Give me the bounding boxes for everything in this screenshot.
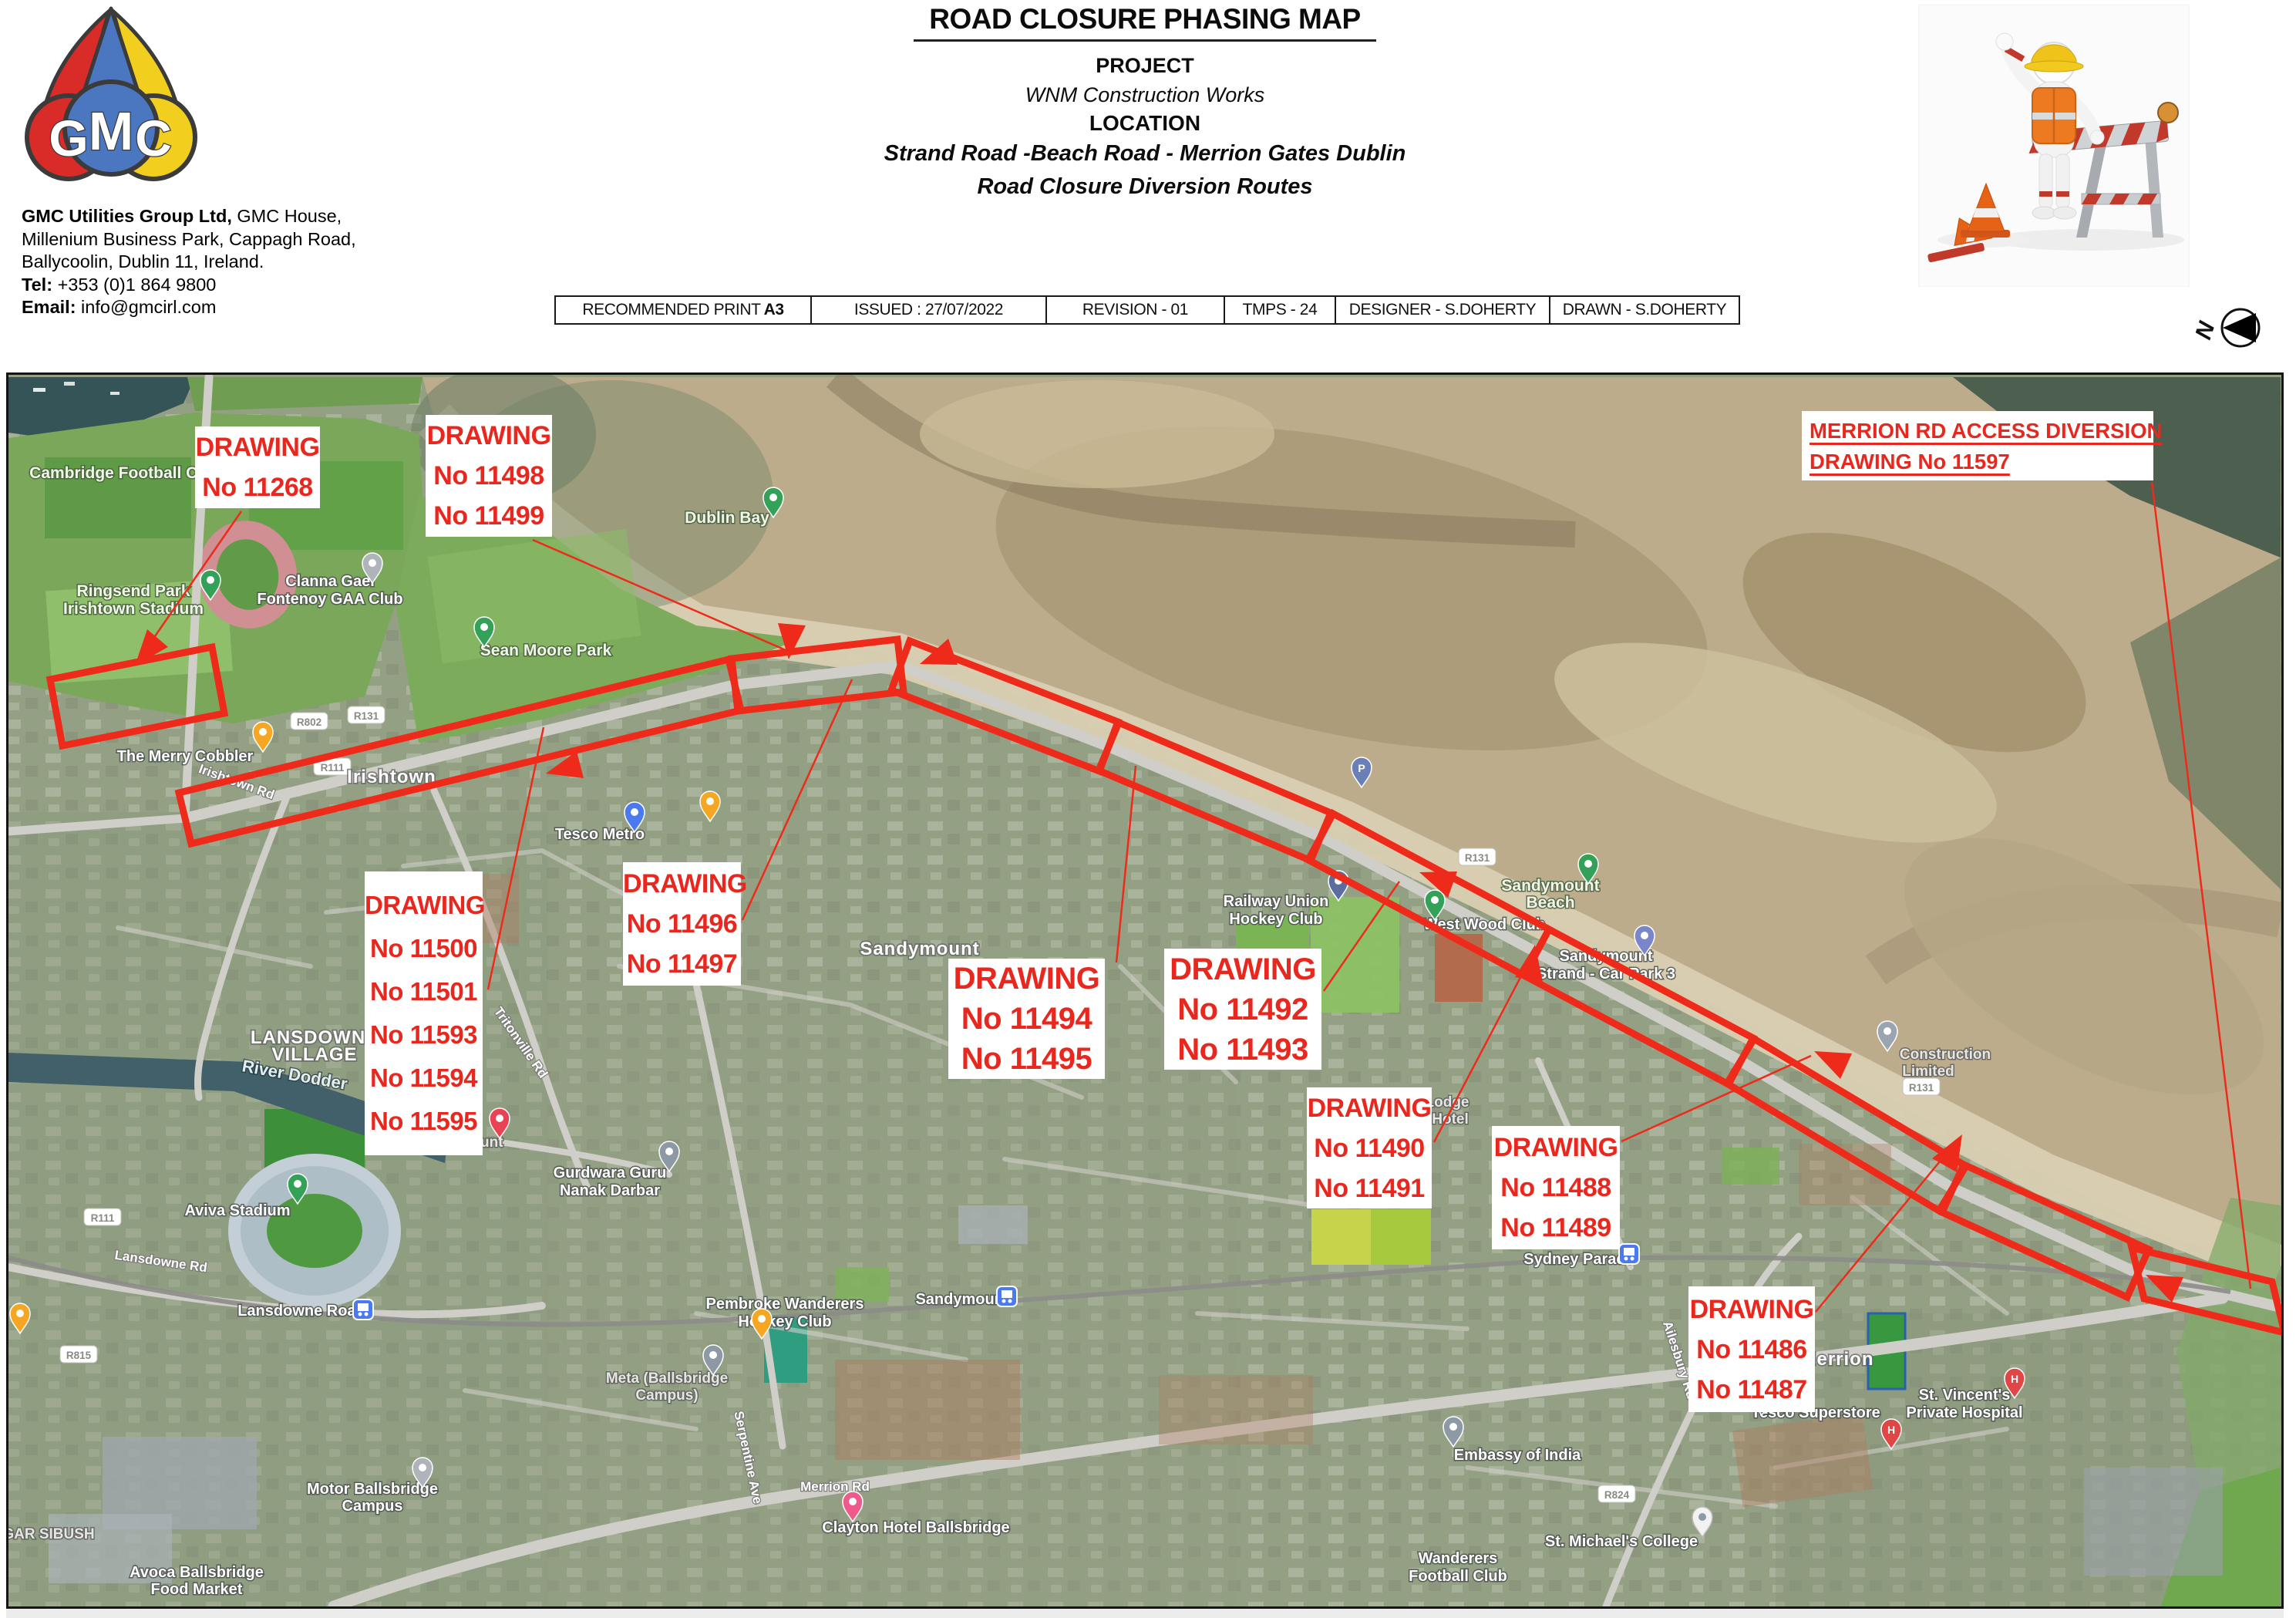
label-clayton: Clayton Hotel Ballsbridge xyxy=(822,1519,1009,1536)
station-lansdowne-road-icon xyxy=(353,1299,373,1320)
label-sandymount-beach2: Beach xyxy=(1526,894,1574,912)
location-line1: Strand Road -Beach Road - Merrion Gates … xyxy=(798,141,1492,167)
label-ringsend-park: Ringsend Park xyxy=(76,582,190,600)
label-sydney-parade: Sydney Parade xyxy=(1523,1251,1634,1268)
label-irishtown-stadium: Irishtown Stadium xyxy=(63,600,204,618)
drawing-box-11488-11489: DRAWINGNo 11488No 11489 xyxy=(1492,1126,1620,1249)
info-cell-tmps: TMPS - 24 xyxy=(1224,295,1336,325)
label-railway-union1: Railway Union xyxy=(1224,893,1329,910)
drawing-info-table: RECOMMENDED PRINTA3 ISSUED : 27/07/2022 … xyxy=(554,295,1740,325)
station-sandymount-icon xyxy=(997,1286,1017,1306)
label-gurdwara2: Nanak Darbar xyxy=(560,1182,660,1199)
info-cell-revision: REVISION - 01 xyxy=(1045,295,1225,325)
label-motor2: Campus xyxy=(342,1498,403,1515)
label-tesco-metro: Tesco Metro xyxy=(555,826,645,843)
location-line2: Road Closure Diversion Routes xyxy=(798,174,1492,200)
project-value: WNM Construction Works xyxy=(798,83,1492,107)
project-label: PROJECT xyxy=(798,54,1492,78)
aviva-stadium-shape xyxy=(228,1154,401,1308)
label-lodge: Lodge xyxy=(1426,1094,1470,1111)
drawing-box-11486-11487: DRAWINGNo 11486No 11487 xyxy=(1688,1286,1815,1412)
svg-text:H: H xyxy=(2011,1373,2018,1385)
road-closure-phasing-map-document: G M C GMC Utilities Group Ltd, GMC House… xyxy=(0,0,2296,1618)
label-wanderers2: Football Club xyxy=(1409,1568,1507,1585)
north-arrow-icon: N xyxy=(2188,301,2273,355)
label-avoca2: Food Market xyxy=(151,1581,243,1598)
logo-letter-m: M xyxy=(89,101,133,161)
label-st-vincents2: Private Hospital xyxy=(1906,1404,2022,1421)
company-address-line3: Ballycoolin, Dublin 11, Ireland. xyxy=(22,251,376,274)
label-construction1: Construction xyxy=(1900,1047,1991,1063)
construction-worker-clipart xyxy=(1918,5,2190,287)
station-sydney-parade-icon xyxy=(1619,1244,1639,1264)
logo-letter-g: G xyxy=(49,110,88,167)
label-avoca1: Avoca Ballsbridge xyxy=(130,1564,264,1581)
label-dublin-bay: Dublin Bay xyxy=(685,509,769,527)
drawing-box-11498-11499: DRAWINGNo 11498No 11499 xyxy=(426,415,552,537)
label-gar-sibush: GAR SIBUSH xyxy=(8,1526,95,1542)
label-merry-cobbler: The Merry Cobbler xyxy=(117,748,254,765)
info-cell-issued: ISSUED : 27/07/2022 xyxy=(810,295,1047,325)
label-hotel: Hotel xyxy=(1432,1111,1469,1128)
label-gurdwara1: Gurdwara Guru xyxy=(554,1165,667,1181)
company-name-line: GMC Utilities Group Ltd, GMC House, xyxy=(22,205,376,228)
title-block: ROAD CLOSURE PHASING MAP PROJECT WNM Con… xyxy=(798,3,1492,200)
label-construction2: Limited xyxy=(1902,1063,1954,1080)
svg-text:R815: R815 xyxy=(66,1350,92,1361)
gmc-logo: G M C xyxy=(22,5,200,204)
svg-text:R131: R131 xyxy=(354,710,379,722)
svg-text:R131: R131 xyxy=(1465,852,1490,864)
label-st-vincents1: St. Vincent's xyxy=(1919,1387,2011,1404)
company-email-line: Email: info@gmcirl.com xyxy=(22,296,376,319)
label-st-michaels: St. Michael's College xyxy=(1545,1533,1698,1550)
svg-text:P: P xyxy=(1358,762,1365,774)
logo-letter-c: C xyxy=(135,110,172,167)
info-cell-print: RECOMMENDED PRINTA3 xyxy=(554,295,812,325)
label-aviva: Aviva Stadium xyxy=(184,1202,290,1219)
company-address-block: GMC Utilities Group Ltd, GMC House, Mill… xyxy=(22,205,376,319)
label-sean-moore-park: Sean Moore Park xyxy=(480,642,612,659)
label-fontenoy: Fontenoy GAA Club xyxy=(257,591,402,608)
satellite-map: R131 R802 R111 R111 R815 R131 R131 R824 … xyxy=(6,372,2284,1609)
label-lansdowne-road-stn: Lansdowne Road xyxy=(237,1303,365,1320)
drawing-box-11268: DRAWINGNo 11268 xyxy=(195,426,320,508)
company-address-line2: Millenium Business Park, Cappagh Road, xyxy=(22,228,376,251)
svg-text:R111: R111 xyxy=(91,1212,115,1224)
label-merrion-rd: Merrion Rd xyxy=(800,1479,870,1494)
label-pembroke1: Pembroke Wanderers xyxy=(706,1296,864,1313)
label-meta2: Campus) xyxy=(635,1387,698,1404)
page-bottom-strip xyxy=(6,1609,2284,1618)
label-cambridge-fc: Cambridge Football Club xyxy=(29,464,222,482)
label-railway-union2: Hockey Club xyxy=(1229,911,1322,928)
label-wanderers1: Wanderers xyxy=(1419,1550,1498,1567)
info-cell-drawn: DRAWN - S.DOHERTY xyxy=(1549,295,1740,325)
merrion-rd-access-diversion-box: MERRION RD ACCESS DIVERSION DRAWING No 1… xyxy=(1802,411,2153,480)
drawing-box-11494-11495: DRAWINGNo 11494No 11495 xyxy=(948,959,1105,1079)
label-embassy: Embassy of India xyxy=(1454,1447,1581,1464)
company-tel-line: Tel: +353 (0)1 864 9800 xyxy=(22,274,376,297)
drawing-box-11490-11491: DRAWINGNo 11490No 11491 xyxy=(1307,1087,1432,1208)
info-cell-designer: DESIGNER - S.DOHERTY xyxy=(1335,295,1550,325)
svg-text:R111: R111 xyxy=(321,762,345,774)
drawing-box-11492-11493: DRAWINGNo 11492No 11493 xyxy=(1164,949,1321,1070)
label-motor1: Motor Ballsbridge xyxy=(307,1481,438,1498)
svg-text:R802: R802 xyxy=(297,716,322,728)
label-sandymount-area: Sandymount xyxy=(860,939,979,959)
drawing-box-11496-11497: DRAWINGNo 11496No 11497 xyxy=(623,862,741,986)
page-title: ROAD CLOSURE PHASING MAP xyxy=(914,3,1375,42)
map-canvas: R131 R802 R111 R111 R815 R131 R131 R824 … xyxy=(8,375,2281,1606)
svg-text:R824: R824 xyxy=(1604,1489,1630,1501)
label-lansdowne-village2: VILLAGE xyxy=(271,1044,357,1065)
label-clanna-gael: Clanna Gael xyxy=(285,573,375,590)
svg-text:R131: R131 xyxy=(1909,1082,1934,1094)
label-meta1: Meta (Ballsbridge xyxy=(606,1370,728,1387)
drawing-box-11500-11595: DRAWINGNo 11500No 11501No 11593No 11594N… xyxy=(365,871,483,1155)
north-label: N xyxy=(2190,318,2220,342)
svg-text:H: H xyxy=(1887,1424,1895,1436)
location-label: LOCATION xyxy=(798,111,1492,136)
label-carpark2: Strand - Car Park 3 xyxy=(1537,966,1675,983)
label-sandymount-stn: Sandymount xyxy=(915,1291,1008,1308)
